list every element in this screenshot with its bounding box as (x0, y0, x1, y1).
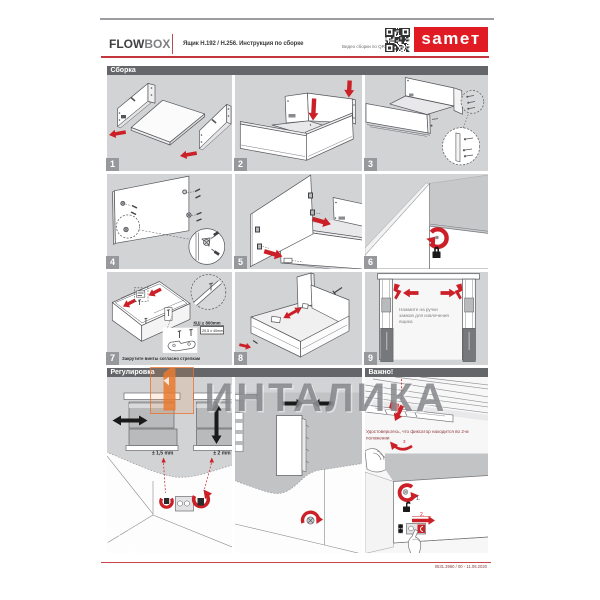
svg-text:1.: 1. (416, 496, 420, 502)
svg-text:замков для извлечения: замков для извлечения (399, 313, 449, 318)
svg-text:КШ ≥ 800mm: КШ ≥ 800mm (193, 320, 220, 325)
svg-text:положении: положении (366, 435, 390, 440)
svg-text:± 2 mm: ± 2 mm (213, 450, 231, 456)
svg-text:ящика: ящика (399, 319, 413, 324)
svg-text:20,5 x 40mm: 20,5 x 40mm (202, 328, 223, 332)
svg-text:2.: 2. (420, 512, 424, 518)
svg-text:Нажмите на ручки: Нажмите на ручки (399, 307, 438, 312)
svg-text:Удостоверьтесь, что фиксатор н: Удостоверьтесь, что фиксатор находится в… (366, 429, 469, 434)
svg-text:± 1,5 mm: ± 1,5 mm (152, 450, 174, 456)
svg-text:3: 3 (403, 439, 406, 444)
